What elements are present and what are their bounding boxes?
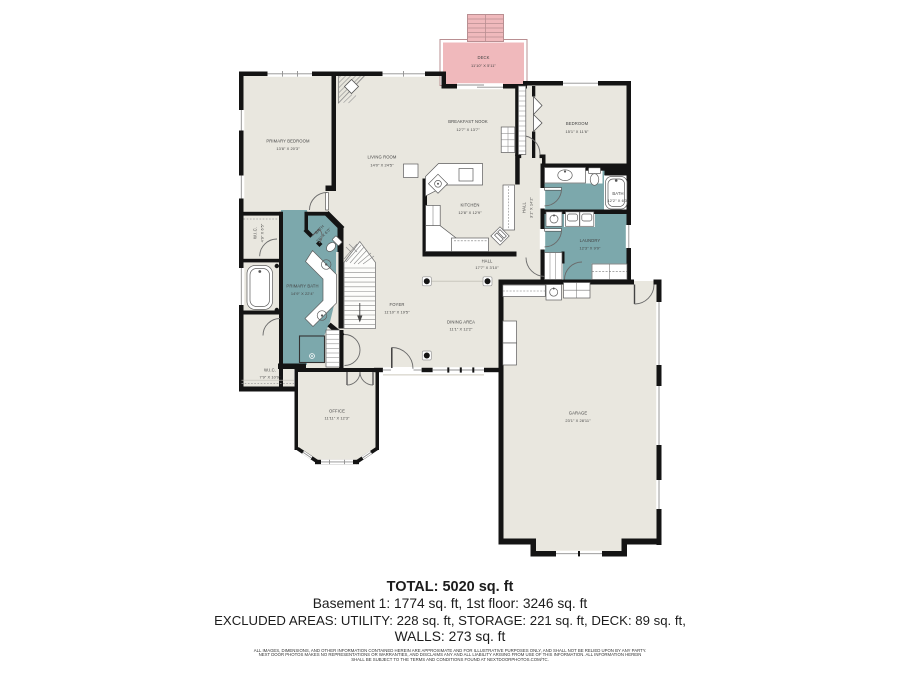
svg-text:PRIMARY BEDROOM: PRIMARY BEDROOM [266, 139, 310, 144]
svg-text:14'0" X 24'5": 14'0" X 24'5" [370, 163, 394, 168]
svg-text:LAUNDRY: LAUNDRY [580, 238, 601, 243]
svg-text:11'10" X 19'5": 11'10" X 19'5" [384, 310, 410, 315]
svg-text:LIVING ROOM: LIVING ROOM [367, 155, 396, 160]
svg-text:11'1" X 12'2": 11'1" X 12'2" [450, 327, 474, 332]
svg-text:BEDROOM: BEDROOM [566, 121, 589, 126]
svg-text:DINING AREA: DINING AREA [447, 320, 475, 325]
svg-text:PRIMARY BATH: PRIMARY BATH [286, 284, 318, 289]
svg-text:14'9" X 22'4": 14'9" X 22'4" [291, 291, 315, 296]
svg-text:12'3" X 9'9": 12'3" X 9'9" [579, 246, 601, 251]
svg-text:12'7" X 13'7": 12'7" X 13'7" [456, 127, 480, 132]
svg-text:HALL: HALL [482, 259, 493, 264]
svg-text:11'10" X 5'11": 11'10" X 5'11" [471, 63, 496, 68]
svg-text:OFFICE: OFFICE [329, 409, 345, 414]
svg-text:W.I.C.: W.I.C. [253, 227, 258, 239]
svg-text:BREAKFAST NOOK: BREAKFAST NOOK [448, 119, 488, 124]
svg-text:11'11" X 12'3": 11'11" X 12'3" [325, 416, 350, 421]
svg-text:W.I.C.: W.I.C. [264, 368, 276, 373]
svg-text:17'7" X 3'10": 17'7" X 3'10" [475, 265, 499, 270]
svg-text:FOYER: FOYER [390, 302, 405, 307]
svg-text:4'9" X 6'5": 4'9" X 6'5" [260, 223, 265, 242]
svg-text:13'8" X 20'3": 13'8" X 20'3" [276, 146, 300, 151]
svg-text:DECK: DECK [477, 55, 489, 60]
svg-text:7'9" X 10'9": 7'9" X 10'9" [259, 375, 281, 380]
svg-text:BATH: BATH [612, 191, 623, 196]
svg-text:15'1" X 11'6": 15'1" X 11'6" [566, 129, 590, 134]
svg-text:23'1" X 28'11": 23'1" X 28'11" [565, 418, 591, 423]
svg-text:KITCHEN: KITCHEN [460, 203, 479, 208]
svg-text:3'1" X 14'2": 3'1" X 14'2" [529, 196, 534, 218]
svg-text:GARAGE: GARAGE [569, 411, 588, 416]
svg-text:12'2" X 6'3": 12'2" X 6'3" [607, 198, 629, 203]
svg-text:12'8" X 12'9": 12'8" X 12'9" [458, 210, 482, 215]
svg-text:HALL: HALL [522, 201, 527, 212]
